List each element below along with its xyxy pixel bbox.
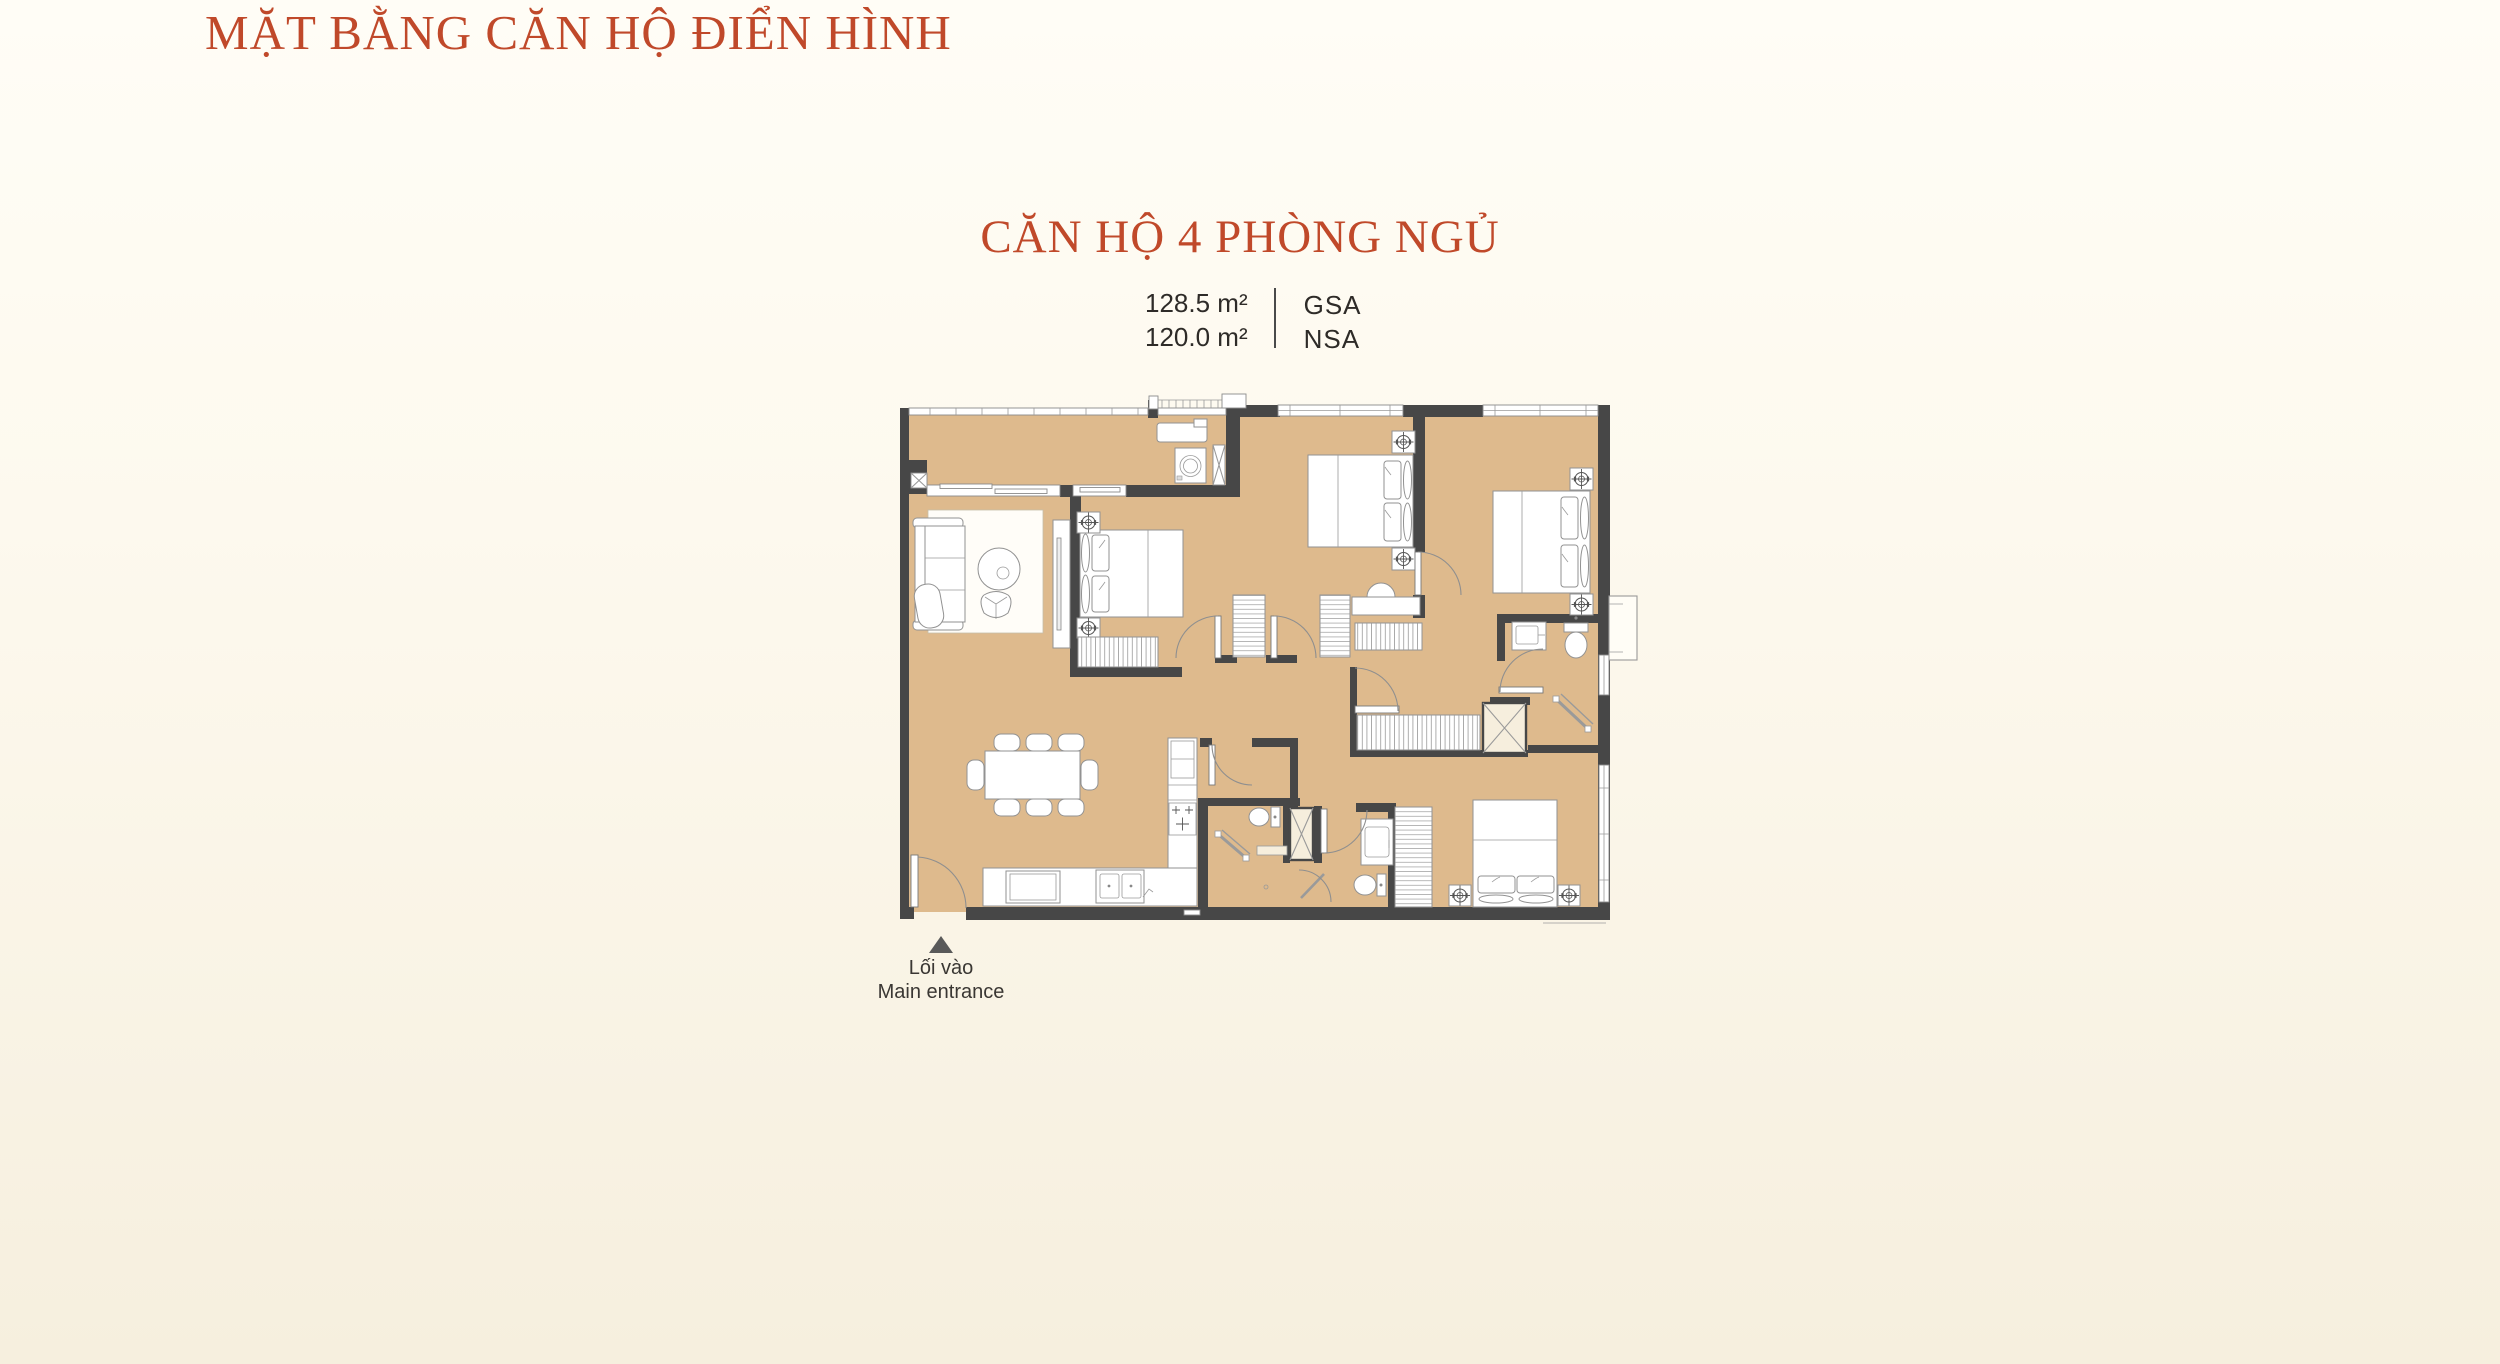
vanity-desk xyxy=(1352,597,1420,615)
area-labels: GSA NSA xyxy=(1304,286,1362,356)
area-gsa-label: GSA xyxy=(1304,288,1362,322)
page-title: MẶT BẰNG CĂN HỘ ĐIỂN HÌNH xyxy=(205,4,952,61)
floor-plan-drawing xyxy=(900,392,1655,935)
bathroom-3-toilet xyxy=(1564,616,1588,658)
entrance-label-vi: Lối vào xyxy=(866,957,1016,980)
kitchen-sink xyxy=(1096,870,1153,903)
entrance-label-en: Main entrance xyxy=(866,981,1016,1004)
entrance-arrow-icon xyxy=(929,936,953,953)
entrance-door xyxy=(911,855,918,907)
washing-machine xyxy=(1175,448,1206,483)
dining-table xyxy=(985,751,1080,799)
area-values: 128.5 m² 120.0 m² xyxy=(1145,286,1248,354)
bathroom-2-toilet xyxy=(1354,874,1386,896)
tv-console xyxy=(1053,520,1070,648)
divider-line xyxy=(1274,288,1276,348)
bathroom-2-sink xyxy=(1361,819,1393,865)
area-nsa-value: 120.0 m² xyxy=(1145,320,1248,354)
area-block: 128.5 m² 120.0 m² GSA NSA xyxy=(1145,286,1362,356)
sofa xyxy=(912,518,965,630)
unit-title: CĂN HỘ 4 PHÒNG NGỦ xyxy=(870,210,1610,264)
area-gsa-value: 128.5 m² xyxy=(1145,286,1248,320)
bathroom-1-toilet xyxy=(1249,807,1280,827)
area-nsa-label: NSA xyxy=(1304,322,1362,356)
